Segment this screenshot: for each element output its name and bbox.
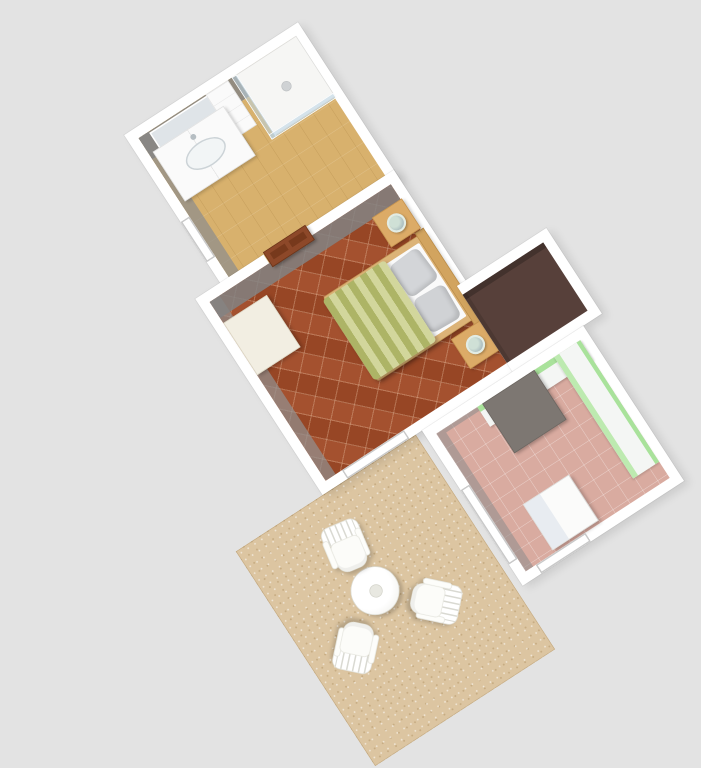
apartment-plan <box>12 0 701 766</box>
chair-seat <box>338 620 375 658</box>
garden-chair-southwest <box>331 618 382 676</box>
garden-chair-southeast <box>407 575 465 626</box>
shower-drain <box>279 79 293 93</box>
garden-table-pedestal <box>367 582 385 600</box>
floorplan-stage <box>0 0 701 768</box>
chair-seat <box>408 581 446 618</box>
table-lamp-right <box>462 331 489 358</box>
table-lamp-left <box>383 210 410 237</box>
faucet <box>189 133 197 141</box>
sink-basin <box>180 130 232 177</box>
